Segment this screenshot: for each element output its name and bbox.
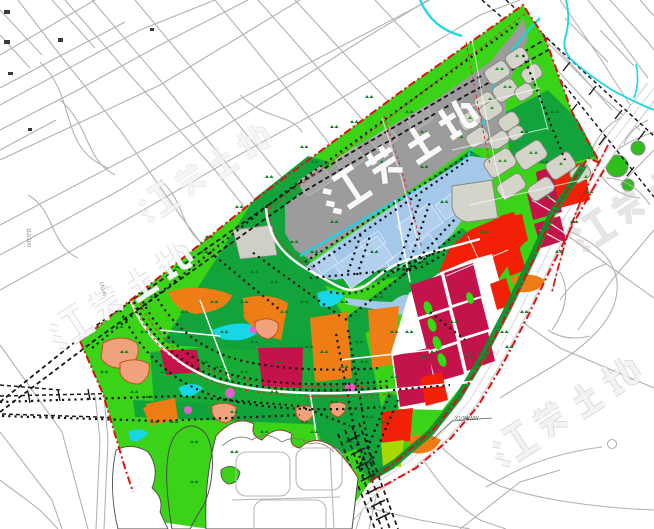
svg-text:112(116): 112(116) [25, 228, 32, 248]
